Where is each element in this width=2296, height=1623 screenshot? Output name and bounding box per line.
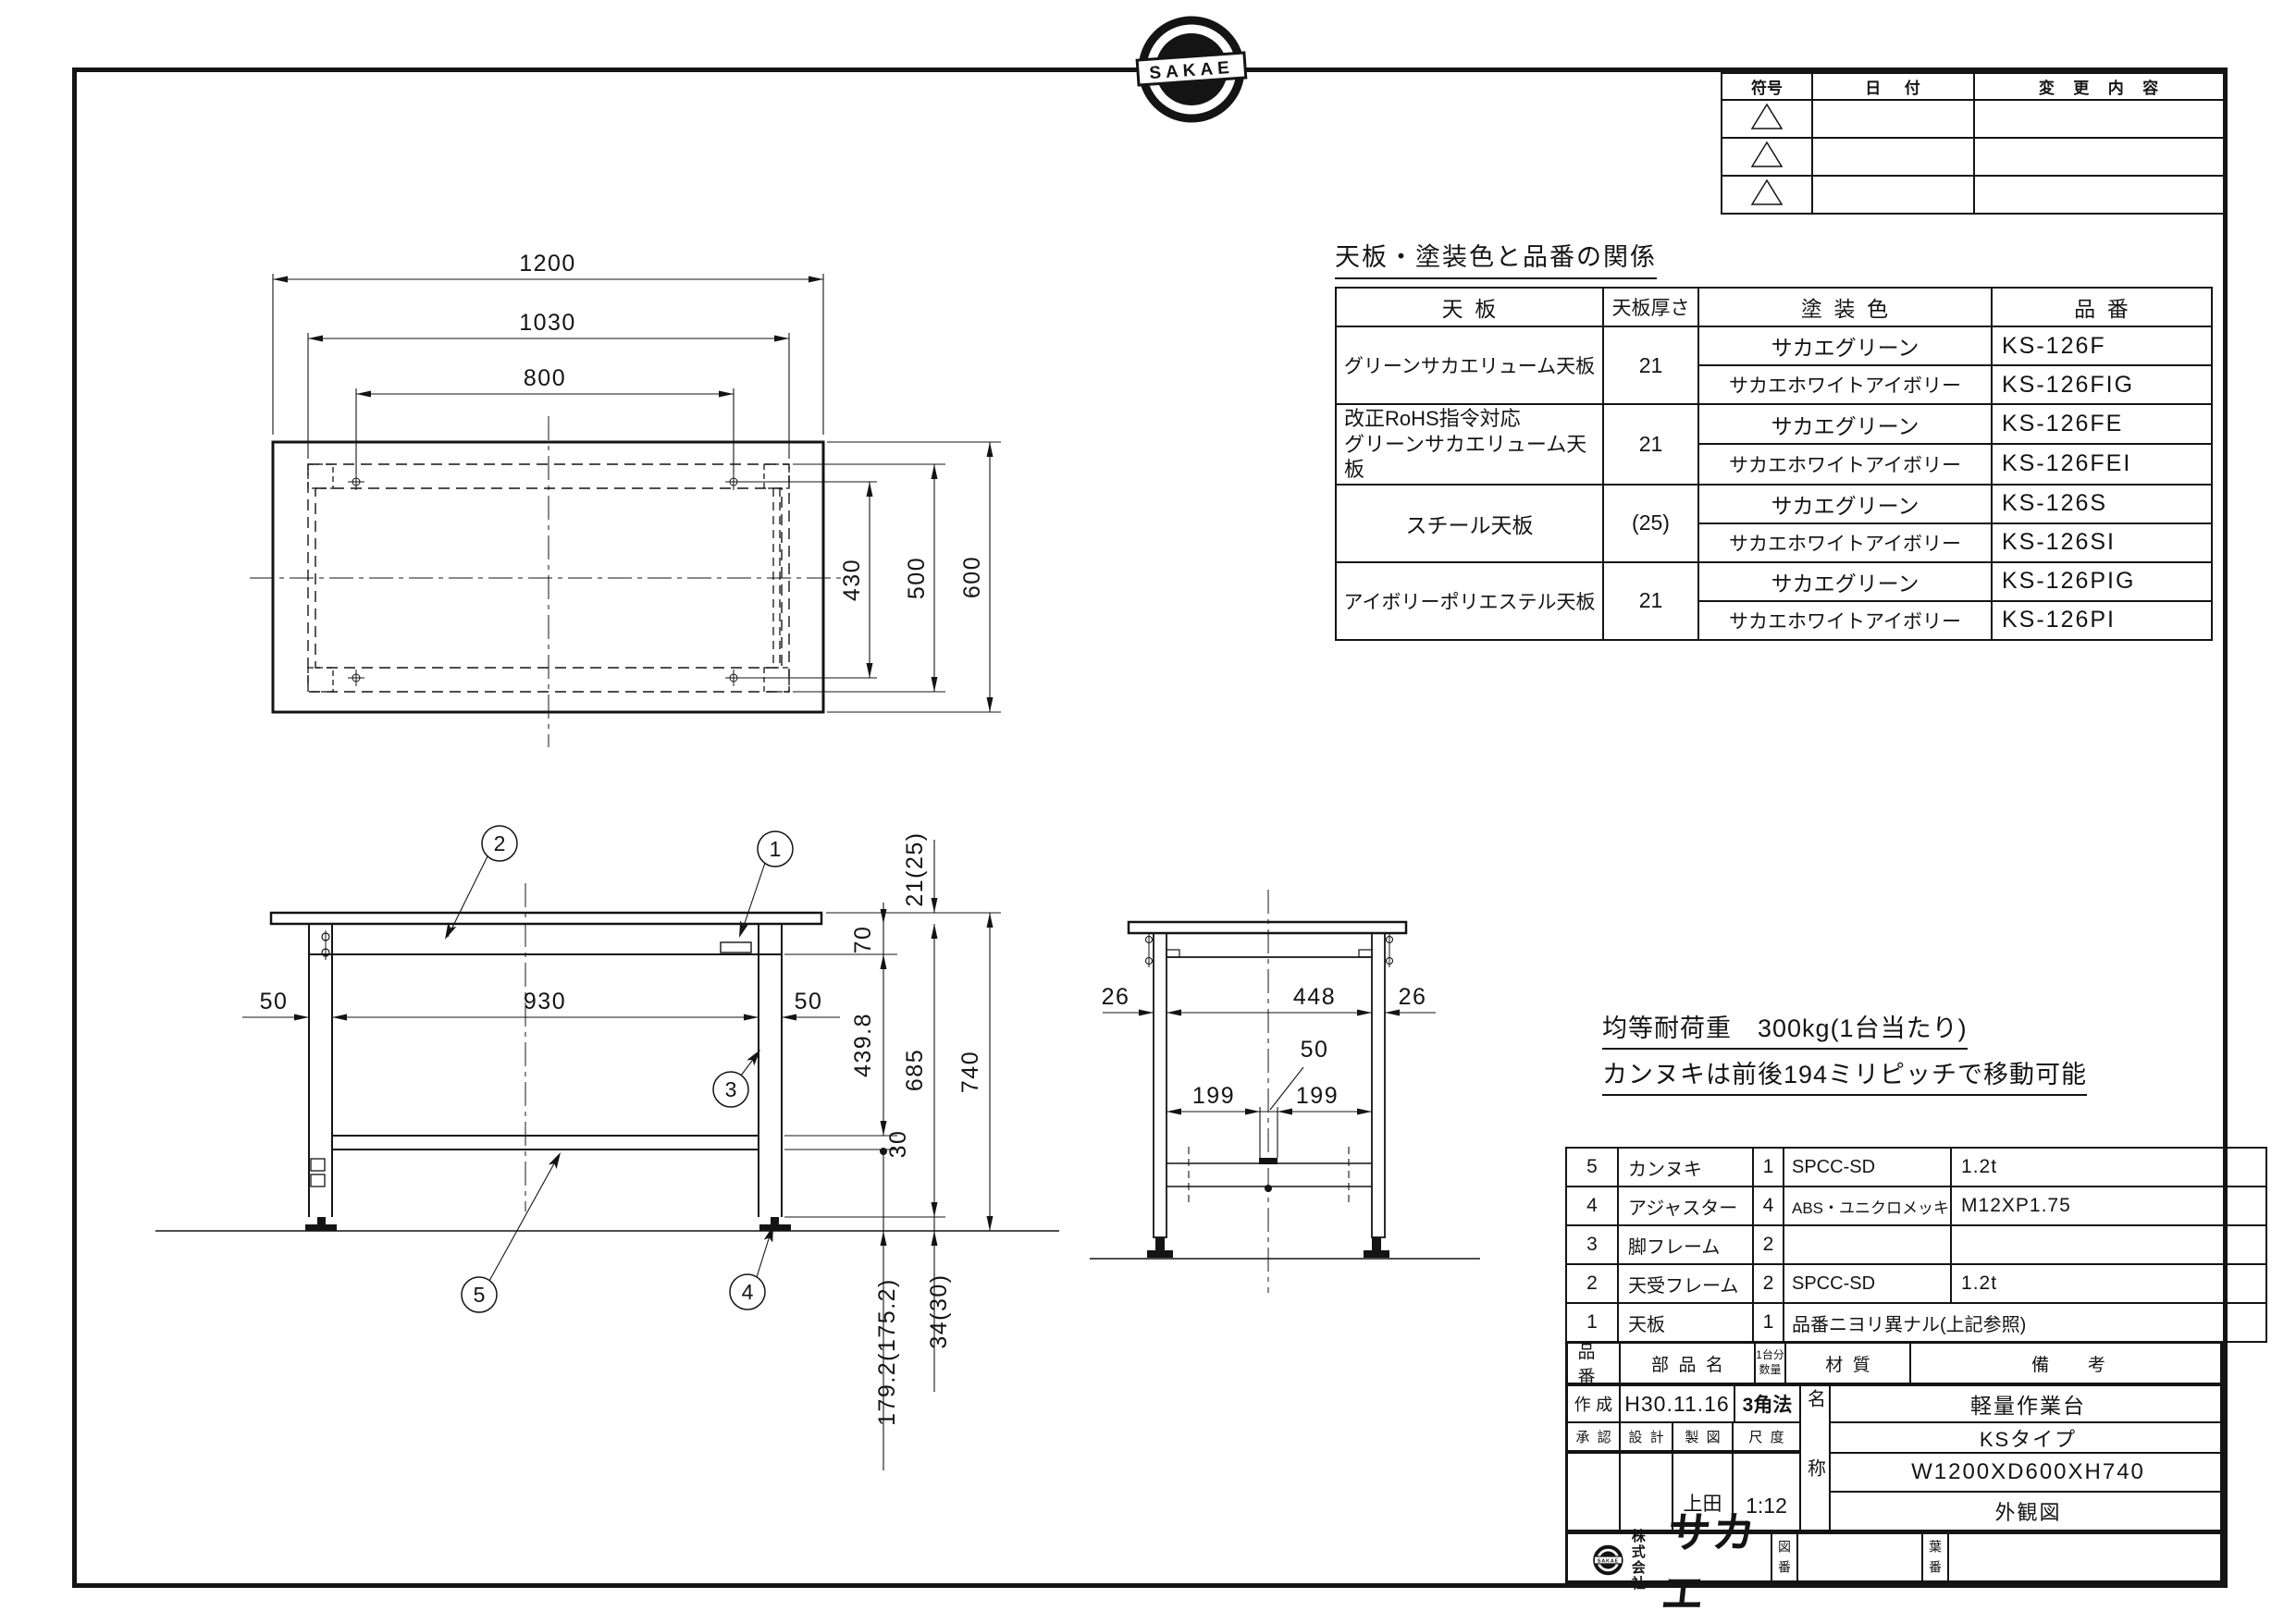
dim-front-clear-height: 685	[902, 1049, 928, 1091]
dim-front-foot-height: 34(30)	[926, 1273, 952, 1348]
bolt-marks	[348, 473, 742, 686]
revision-change-cell	[1974, 138, 2224, 176]
name-label: 名称	[1800, 1385, 1830, 1531]
dim-top-span-width: 800	[524, 365, 566, 391]
parts-col-qty: 1台分 数量	[1755, 1344, 1785, 1385]
spec-col-board: 天板	[1336, 288, 1603, 326]
dim-front-leg-left: 50	[260, 989, 289, 1014]
spec-color-cell: サカエグリーン	[1698, 562, 1992, 601]
balloon-3: 3	[713, 1047, 764, 1107]
product-size: W1200XD600XH740	[1830, 1453, 2226, 1492]
spec-part-cell: KS-126FEI	[1992, 444, 2212, 484]
spec-part-cell: KS-126FIG	[1992, 365, 2212, 404]
adjuster-feet	[305, 1217, 791, 1231]
dim-top-span-depth: 430	[839, 559, 865, 601]
spec-board-cell: アイボリーポリエステル天板	[1336, 562, 1603, 640]
parts-col-material: 材質	[1785, 1344, 1910, 1385]
parts-col-name: 部品名	[1620, 1344, 1755, 1385]
part-no: 4	[1566, 1187, 1618, 1225]
dim-front-inner-span: 930	[524, 989, 566, 1014]
part-name: 天板	[1618, 1303, 1753, 1342]
spec-color-cell: サカエホワイトアイボリー	[1698, 444, 1992, 484]
sakae-logo-small: SAKAE	[1592, 1540, 1624, 1580]
spec-color-cell: サカエグリーン	[1698, 485, 1992, 523]
part-name: 脚フレーム	[1618, 1225, 1753, 1264]
part-qty: 1	[1753, 1148, 1784, 1187]
spec-part-cell: KS-126PI	[1992, 601, 2212, 640]
note-load-capacity: 均等耐荷重 300kg(1台当たり)	[1602, 1008, 1968, 1050]
revision-mark-triangle-icon	[1722, 176, 1812, 214]
table-row: 4 アジャスター 4 ABS・ユニクロメッキ M12XP1.75	[1566, 1187, 2266, 1225]
spec-part-cell: KS-126F	[1992, 326, 2212, 365]
draft-label: 製図	[1673, 1422, 1733, 1453]
part-material	[1784, 1225, 1951, 1264]
front-view: 50 930 50 21(25) 70 439.8 30 685 740 179…	[155, 826, 1059, 1470]
svg-text:SAKAE: SAKAE	[1598, 1558, 1619, 1564]
spec-board-cell: 改正RoHS指令対応 グリーンサカエリューム天板	[1336, 404, 1603, 485]
part-material: 品番ニヨリ異ナル(上記参照)	[1784, 1303, 2266, 1342]
drawing-view-name: 外観図	[1830, 1492, 2226, 1531]
spec-board-cell: グリーンサカエリューム天板	[1336, 326, 1603, 404]
spec-col-color: 塗装色	[1698, 288, 1992, 326]
design-label: 設計	[1620, 1422, 1673, 1453]
spec-color-cell: サカエホワイトアイボリー	[1698, 601, 1992, 640]
spec-col-part: 品番	[1992, 288, 2212, 326]
part-qty: 1	[1753, 1303, 1784, 1342]
created-date: H30.11.16	[1620, 1385, 1734, 1422]
dim-front-bar-thickness: 30	[885, 1130, 911, 1159]
svg-text:4: 4	[742, 1280, 754, 1304]
revision-col-date: 日付	[1812, 73, 1974, 100]
projection-method: 3角法	[1734, 1385, 1800, 1422]
revision-date-cell	[1812, 176, 1974, 214]
part-no: 2	[1566, 1264, 1618, 1303]
dim-side-pitch-left: 199	[1192, 1083, 1235, 1109]
dim-side-leg-right: 26	[1399, 984, 1427, 1010]
dim-top-depth: 600	[959, 556, 985, 598]
dim-top-width: 1200	[519, 251, 576, 277]
drawing-no-label: 図番	[1771, 1531, 1797, 1586]
approved-label: 承認	[1568, 1422, 1620, 1453]
dim-front-top-thickness: 21(25)	[902, 831, 928, 906]
spec-thickness-cell: 21	[1603, 326, 1698, 404]
sheet-no-label: 葉番	[1922, 1531, 1948, 1586]
dim-front-frame-height: 70	[850, 926, 876, 954]
side-view: 26 448 26 50 199 199	[1090, 890, 1480, 1293]
dim-front-bar-to-floor: 179.2(175.2)	[874, 1278, 900, 1426]
approved-signature	[1568, 1453, 1620, 1531]
svg-text:2: 2	[494, 831, 506, 855]
table-row: 1 天板 1 品番ニヨリ異ナル(上記参照)	[1566, 1303, 2266, 1342]
scale-label: 尺度	[1733, 1422, 1800, 1453]
part-no: 3	[1566, 1225, 1618, 1264]
company-prefix: 株式会社	[1632, 1529, 1658, 1592]
part-remarks: 1.2t	[1951, 1148, 2266, 1187]
drawing-sheet: 1200 1030 800 430 500 600	[0, 0, 2296, 1623]
dim-side-pitch-right: 199	[1296, 1083, 1339, 1109]
part-name: 天受フレーム	[1618, 1264, 1753, 1303]
spec-part-cell: KS-126SI	[1992, 523, 2212, 562]
revision-mark-triangle-icon	[1722, 138, 1812, 176]
part-qty: 2	[1753, 1264, 1784, 1303]
part-no: 5	[1566, 1148, 1618, 1187]
sakae-logo: SAKAE	[1131, 12, 1252, 127]
revision-change-cell	[1974, 100, 2224, 138]
spec-part-cell: KS-126PIG	[1992, 562, 2212, 601]
table-row: 5 カンヌキ 1 SPCC-SD 1.2t	[1566, 1148, 2266, 1187]
part-remarks	[1951, 1225, 2266, 1264]
note-bar-pitch: カンヌキは前後194ミリピッチで移動可能	[1602, 1054, 2087, 1096]
revision-col-symbol: 符号	[1722, 73, 1812, 100]
spec-color-cell: サカエグリーン	[1698, 404, 1992, 444]
design-signature	[1620, 1453, 1673, 1531]
company-logo-cell: SAKAE 株式会社 サカエ	[1568, 1531, 1771, 1586]
part-qty: 4	[1753, 1187, 1784, 1225]
spec-part-cell: KS-126S	[1992, 485, 2212, 523]
svg-text:1: 1	[770, 837, 782, 861]
spec-board-cell: スチール天板	[1336, 485, 1603, 562]
revision-table: 符号 日付 変更内容	[1721, 72, 2225, 215]
spec-thickness-cell: (25)	[1603, 485, 1698, 562]
part-name: カンヌキ	[1618, 1148, 1753, 1187]
dim-front-height: 740	[957, 1051, 983, 1093]
table-row: 3 脚フレーム 2	[1566, 1225, 2266, 1264]
balloon-4: 4	[730, 1223, 778, 1309]
part-material: SPCC-SD	[1784, 1264, 1951, 1303]
spec-part-cell: KS-126FE	[1992, 404, 2212, 444]
nameplate	[721, 942, 751, 953]
part-qty: 2	[1753, 1225, 1784, 1264]
dim-top-frame-depth: 500	[904, 557, 930, 599]
company-name: サカエ	[1659, 1499, 1777, 1621]
dim-side-inner: 448	[1293, 984, 1336, 1010]
spec-table: 天板 天板厚さ 塗装色 品番 グリーンサカエリューム天板 21 サカエグリーン …	[1335, 287, 2213, 641]
product-type: KSタイプ	[1830, 1422, 2226, 1453]
revision-date-cell	[1812, 100, 1974, 138]
dim-side-leg-left: 26	[1102, 984, 1130, 1010]
svg-text:5: 5	[474, 1283, 486, 1307]
part-remarks: 1.2t	[1951, 1264, 2266, 1303]
svg-text:3: 3	[725, 1077, 737, 1101]
revision-date-cell	[1812, 138, 1974, 176]
title-block: 品番 部品名 1台分 数量 材質 備考 作成 H30.11.16 3角法 承認 …	[1565, 1341, 2223, 1583]
revision-mark-triangle-icon	[1722, 100, 1812, 138]
spec-thickness-cell: 21	[1603, 562, 1698, 640]
spec-color-cell: サカエホワイトアイボリー	[1698, 365, 1992, 404]
part-material: SPCC-SD	[1784, 1148, 1951, 1187]
revision-change-cell	[1974, 176, 2224, 214]
revision-col-change: 変更内容	[1974, 73, 2224, 100]
spec-table-title: 天板・塗装色と品番の関係	[1335, 237, 1657, 279]
top-view: 1200 1030 800 430 500 600	[250, 251, 1001, 747]
dim-front-leg-right: 50	[795, 989, 823, 1014]
spec-thickness-cell: 21	[1603, 404, 1698, 485]
dim-front-upper-height: 439.8	[850, 1013, 876, 1077]
product-name: 軽量作業台	[1830, 1385, 2226, 1422]
part-no: 1	[1566, 1303, 1618, 1342]
sheet-no-value	[1948, 1531, 2226, 1586]
dim-side-bar-width: 50	[1301, 1037, 1329, 1063]
part-remarks: M12XP1.75	[1951, 1187, 2266, 1225]
spec-color-cell: サカエホワイトアイボリー	[1698, 523, 1992, 562]
spec-col-thickness: 天板厚さ	[1603, 288, 1698, 326]
part-material: ABS・ユニクロメッキ	[1784, 1187, 1951, 1225]
dim-top-frame-width: 1030	[519, 310, 576, 336]
parts-table: 5 カンヌキ 1 SPCC-SD 1.2t 4 アジャスター 4 ABS・ユニク…	[1565, 1147, 2267, 1343]
created-label: 作成	[1568, 1385, 1620, 1422]
drawing-no-value	[1797, 1531, 1922, 1586]
parts-col-remarks: 備考	[1910, 1344, 2226, 1385]
table-row: 2 天受フレーム 2 SPCC-SD 1.2t	[1566, 1264, 2266, 1303]
part-name: アジャスター	[1618, 1187, 1753, 1225]
parts-col-no: 品番	[1568, 1344, 1620, 1385]
spec-color-cell: サカエグリーン	[1698, 326, 1992, 365]
